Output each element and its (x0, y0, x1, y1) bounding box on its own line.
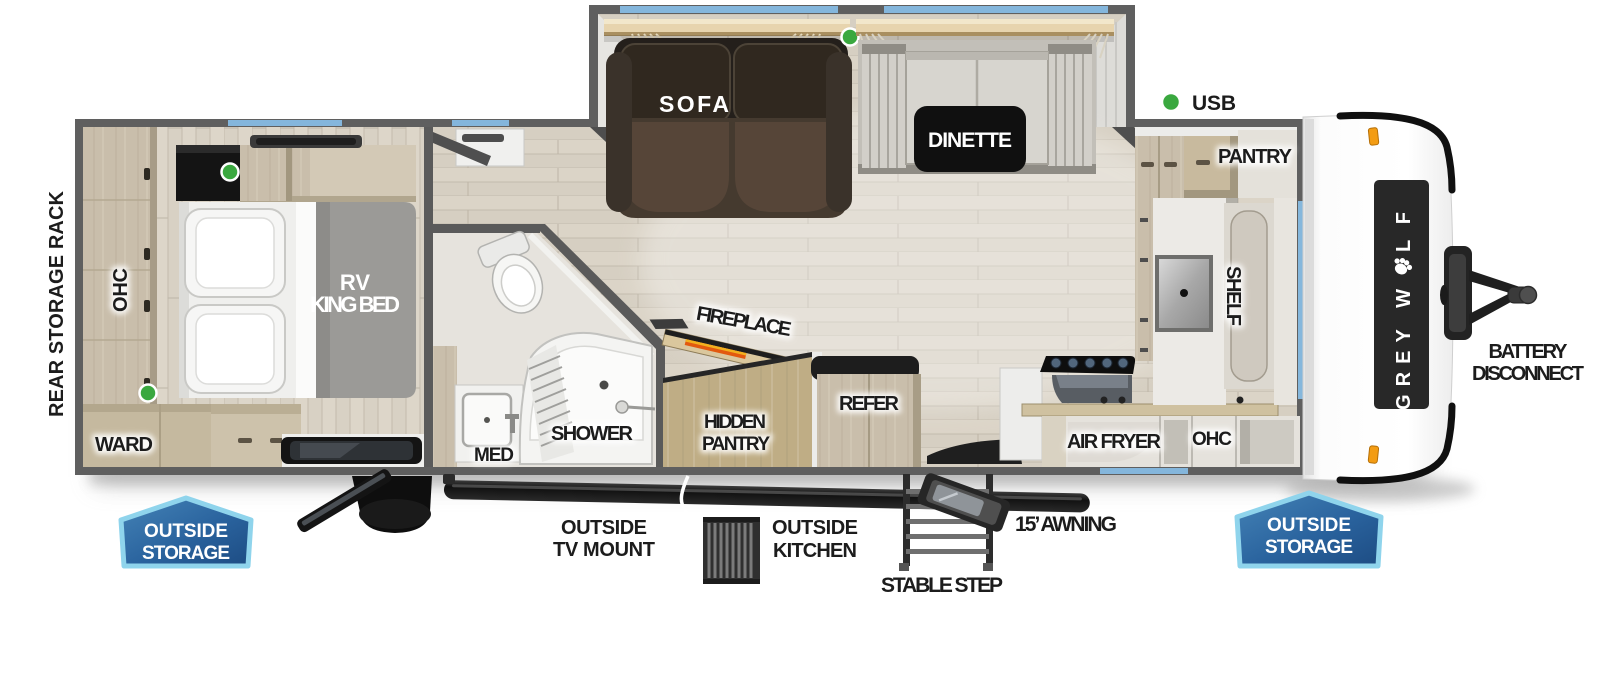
svg-text:15’ AWNING: 15’ AWNING (1015, 513, 1117, 536)
svg-text:DINETTE: DINETTE (928, 129, 1012, 152)
svg-text:SHOWER: SHOWER (551, 423, 634, 445)
svg-text:PANTRY: PANTRY (1218, 146, 1293, 168)
svg-text:OUTSIDE: OUTSIDE (772, 517, 858, 539)
svg-text:OUTSIDE: OUTSIDE (561, 517, 647, 539)
svg-text:STORAGE: STORAGE (1265, 537, 1353, 558)
svg-text:REFER: REFER (839, 393, 900, 415)
svg-text:PANTRY: PANTRY (702, 434, 770, 455)
svg-text:BATTERY: BATTERY (1489, 341, 1569, 363)
svg-text:KITCHEN: KITCHEN (773, 540, 857, 562)
svg-text:HIDDEN: HIDDEN (704, 412, 766, 433)
svg-text:WARD: WARD (95, 434, 153, 456)
svg-text:SHELF: SHELF (1222, 266, 1244, 326)
svg-text:AIR FRYER: AIR FRYER (1067, 431, 1162, 453)
svg-text:TV MOUNT: TV MOUNT (553, 539, 655, 561)
svg-text:SOFA: SOFA (659, 91, 729, 117)
svg-text:OUTSIDE: OUTSIDE (1267, 515, 1351, 536)
svg-text:DISCONNECT: DISCONNECT (1472, 363, 1584, 385)
svg-text:MED: MED (474, 445, 514, 466)
svg-text:STABLE STEP: STABLE STEP (881, 574, 1003, 597)
svg-text:OUTSIDE: OUTSIDE (144, 521, 228, 542)
svg-text:USB: USB (1192, 92, 1236, 115)
svg-text:REAR STORAGE RACK: REAR STORAGE RACK (46, 190, 68, 417)
svg-text:GREY W: GREY W (1393, 283, 1415, 410)
svg-text:OHC: OHC (1192, 429, 1232, 450)
svg-text:OHC: OHC (110, 268, 132, 312)
svg-text:KING BED: KING BED (310, 292, 400, 317)
svg-text:STORAGE: STORAGE (142, 543, 230, 564)
